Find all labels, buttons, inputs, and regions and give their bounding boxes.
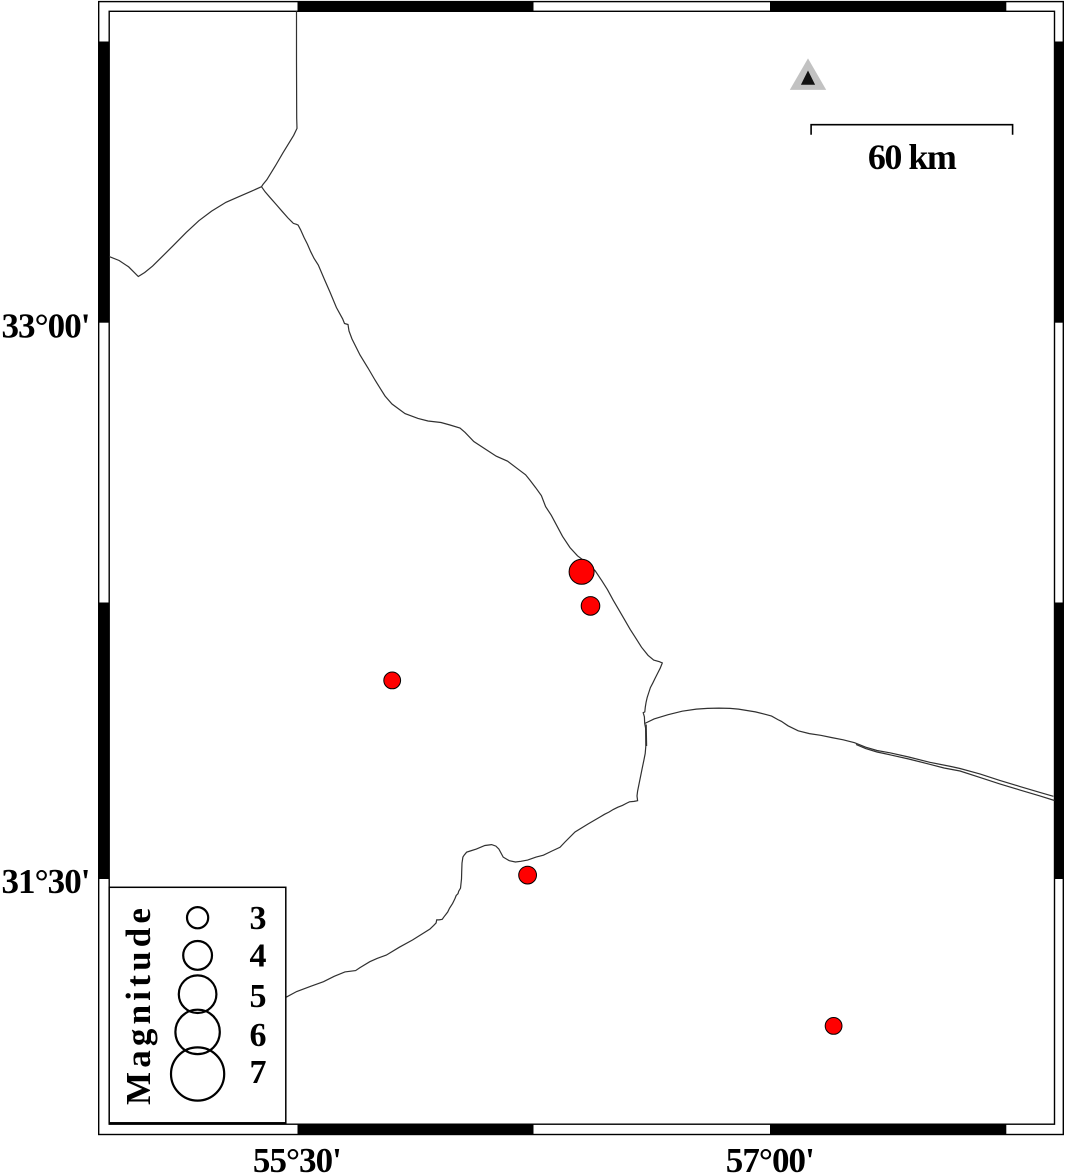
svg-text:6: 6: [250, 1017, 267, 1054]
svg-text:31°30': 31°30': [2, 862, 91, 901]
svg-text:7: 7: [250, 1054, 267, 1091]
svg-text:Magnitude: Magnitude: [119, 904, 158, 1105]
svg-text:4: 4: [250, 938, 267, 975]
svg-text:3: 3: [250, 900, 267, 937]
svg-text:55°30': 55°30': [253, 1141, 342, 1173]
svg-text:57°00': 57°00': [726, 1141, 815, 1173]
svg-text:33°00': 33°00': [2, 306, 91, 345]
svg-text:5: 5: [250, 978, 267, 1015]
svg-text:60 km: 60 km: [868, 137, 957, 177]
